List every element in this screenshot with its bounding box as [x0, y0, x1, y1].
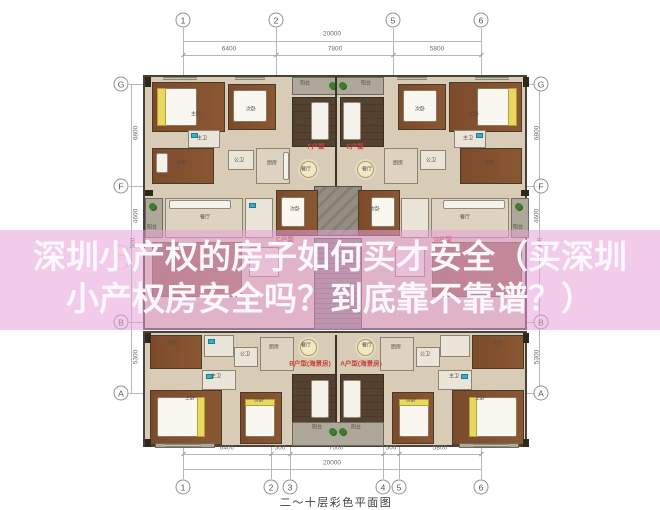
window — [475, 77, 509, 80]
room-label: 书房 — [484, 162, 494, 167]
room-label: 主卫 — [449, 375, 459, 380]
room-label: 次卧 — [406, 399, 416, 404]
dimension-value: 6800 — [133, 126, 140, 140]
room-label: 厨房 — [267, 162, 277, 167]
room-label: 餐厅 — [460, 216, 470, 221]
dimension-value: 500 — [275, 445, 286, 452]
grid-bubble: 3 — [283, 480, 298, 495]
sofa — [343, 380, 361, 418]
room-label: 书房 — [493, 342, 503, 347]
grid-bubble: 1 — [176, 13, 191, 28]
grid-bubble: G — [534, 77, 549, 92]
room-label: 客厅 — [295, 120, 305, 125]
room-label: 次卧 — [415, 108, 425, 113]
dimension-value: 500 — [386, 445, 397, 452]
grid-bubble: A — [114, 386, 129, 401]
room-label: 餐厅 — [362, 168, 372, 173]
grid-line — [129, 393, 143, 394]
room-label: 厨房 — [269, 346, 279, 351]
room-label: 厨房 — [393, 162, 403, 167]
party-wall — [335, 335, 337, 425]
dimension-value: 6400 — [222, 46, 236, 53]
unit-type-label: F户型 — [308, 144, 325, 151]
grid-bubble: F — [114, 179, 129, 194]
dim-line — [183, 55, 481, 56]
room-kitchen — [380, 337, 414, 371]
title-line-1: 深圳小产权的房子如何买才安全（买深圳 — [0, 236, 660, 278]
bath-fixture — [461, 374, 468, 379]
bath-fixture — [208, 339, 215, 344]
dim-line — [183, 454, 481, 455]
floorplan-cover-image: 1256123456GFBAGFBA 200006400780058006400… — [0, 0, 660, 510]
room-label: 主卧 — [191, 113, 201, 118]
grid-bubble: 4 — [376, 480, 391, 495]
bath-fixture — [476, 133, 483, 138]
desk — [156, 153, 168, 173]
dimension-value: 5800 — [433, 445, 447, 452]
grid-bubble: 5 — [392, 480, 407, 495]
room-label: 次卧 — [254, 399, 264, 404]
dimension-value: 5300 — [534, 350, 541, 364]
room-label: 阳台 — [300, 82, 310, 87]
sofa — [169, 200, 231, 209]
unit-type-label: A户型(海景房) — [340, 361, 382, 368]
room-label: 主卧 — [185, 397, 195, 402]
room-label: 公卫 — [240, 353, 250, 358]
sofa — [311, 102, 329, 140]
window — [397, 77, 427, 80]
dimension-value: 6400 — [220, 445, 234, 452]
room-label: 阳台 — [351, 426, 361, 431]
room-label: 公卫 — [426, 159, 436, 164]
room-label: 餐厅 — [301, 344, 311, 349]
room-label: 阳台 — [361, 82, 371, 87]
dimension-value: 20000 — [323, 460, 341, 467]
grid-line — [393, 28, 394, 75]
room-label: 客厅 — [293, 391, 303, 396]
lower-building-block — [143, 331, 527, 447]
title-line-2: 小产权房安全吗？到底靠不靠谱？） — [0, 278, 660, 320]
grid-bubble: 1 — [176, 480, 191, 495]
window — [165, 444, 201, 447]
dim-line — [183, 469, 481, 470]
grid-bubble: 2 — [269, 13, 284, 28]
room-bath — [440, 335, 470, 357]
room-label: 客厅 — [367, 120, 377, 125]
dimension-value: 6800 — [534, 126, 541, 140]
grid-bubble: A — [534, 386, 549, 401]
dimension-value: 7000 — [329, 445, 343, 452]
bed-pillow — [508, 88, 517, 126]
sofa — [443, 200, 505, 209]
unit-type-label: B户型(海景房) — [289, 361, 331, 368]
dimension-value: 5800 — [430, 46, 444, 53]
room-label: 厨房 — [391, 346, 401, 351]
plant — [515, 203, 522, 210]
grid-bubble: 2 — [264, 480, 279, 495]
grid-line — [183, 28, 184, 75]
sofa — [311, 380, 329, 418]
balcony — [292, 422, 384, 446]
room-label: 客厅 — [367, 391, 377, 396]
unit-type-label: E户型 — [346, 144, 363, 151]
dimension-value: 4600 — [133, 209, 140, 223]
room-label: 次卧 — [246, 108, 256, 113]
room-label: 主卫 — [197, 137, 207, 142]
bath-fixture — [249, 203, 256, 208]
grid-bubble: 5 — [386, 13, 401, 28]
dimension-value: 5300 — [133, 350, 140, 364]
elevator-core — [314, 186, 362, 236]
grid-bubble: 6 — [474, 13, 489, 28]
window — [235, 77, 265, 80]
room-label: 主卧 — [469, 113, 479, 118]
bed-pillow — [197, 397, 205, 437]
dimension-value: 20000 — [323, 31, 341, 38]
sofa — [343, 102, 361, 140]
grid-line — [481, 28, 482, 75]
room-label: 次卧 — [290, 208, 300, 213]
room-label: 次卧 — [370, 208, 380, 213]
window — [473, 444, 509, 447]
drawing-caption: 二～十层彩色平面图 — [280, 494, 393, 510]
dimension-value: 4600 — [534, 209, 541, 223]
room-label: 餐厅 — [362, 344, 372, 349]
bed-pillow — [157, 88, 166, 126]
room-label: 餐厅 — [200, 216, 210, 221]
grid-bubble: 6 — [474, 480, 489, 495]
plant — [149, 203, 156, 210]
bed-pillow — [469, 397, 477, 437]
room-label: 公卫 — [234, 159, 244, 164]
grid-bubble: F — [534, 179, 549, 194]
room-label: 书房 — [176, 162, 186, 167]
room-label: 主卫 — [211, 375, 221, 380]
room-label: 阳台 — [312, 426, 322, 431]
grid-bubble: G — [114, 77, 129, 92]
kitchen-counter — [283, 152, 289, 180]
room-label: 公卫 — [420, 353, 430, 358]
party-wall — [335, 77, 337, 187]
room-label: 主卫 — [463, 137, 473, 142]
grid-line — [276, 28, 277, 75]
dim-line — [183, 41, 481, 42]
plant — [329, 428, 336, 435]
plant — [339, 82, 346, 89]
dimension-value: 7800 — [328, 46, 342, 53]
plant — [339, 428, 346, 435]
room-label: 书房 — [167, 342, 177, 347]
window — [163, 77, 197, 80]
room-label: 餐厅 — [301, 168, 311, 173]
room-label: 主卧 — [475, 397, 485, 402]
